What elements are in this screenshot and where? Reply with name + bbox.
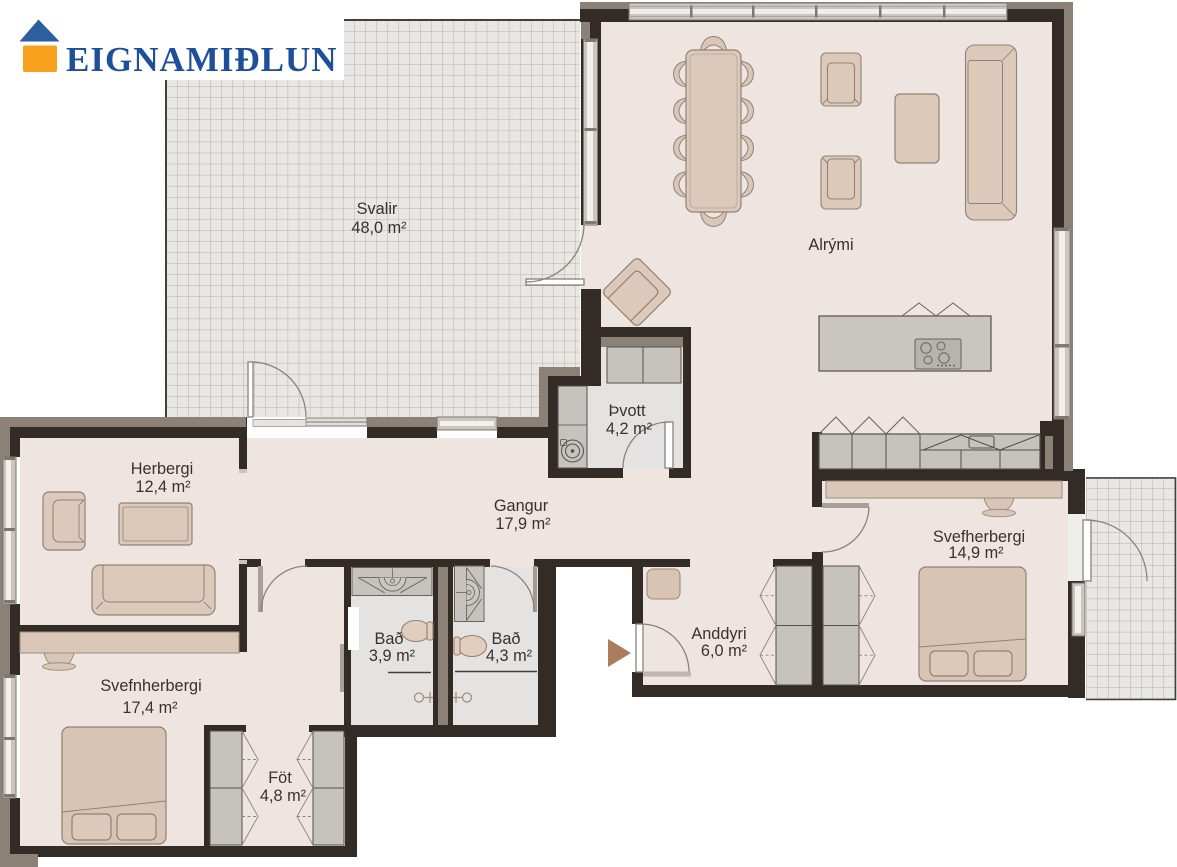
svg-text:17,4 m²: 17,4 m² <box>122 699 178 717</box>
svg-text:Þvott: Þvott <box>608 402 646 420</box>
svg-text:4,2 m²: 4,2 m² <box>606 420 653 438</box>
svg-text:12,4 m²: 12,4 m² <box>135 478 191 496</box>
svg-text:6,0 m²: 6,0 m² <box>701 642 748 660</box>
svg-text:Alrými: Alrými <box>808 236 853 254</box>
svg-text:4,3 m²: 4,3 m² <box>486 647 533 665</box>
svg-text:17,9 m²: 17,9 m² <box>495 515 551 533</box>
svg-text:Föt: Föt <box>268 769 292 787</box>
svg-text:Svalir: Svalir <box>357 200 398 218</box>
svg-text:3,9 m²: 3,9 m² <box>369 647 416 665</box>
svg-text:Svefnherbergi: Svefnherbergi <box>100 677 201 695</box>
svg-text:EIGNAMIÐLUN: EIGNAMIÐLUN <box>66 40 338 79</box>
svg-text:Herbergi: Herbergi <box>131 460 193 478</box>
svg-text:Anddyri: Anddyri <box>691 625 746 643</box>
svg-text:Gangur: Gangur <box>494 497 549 515</box>
svg-text:Bað: Bað <box>492 630 521 648</box>
svg-text:4,8 m²: 4,8 m² <box>260 787 307 805</box>
svg-text:Bað: Bað <box>375 630 404 648</box>
svg-text:48,0 m²: 48,0 m² <box>351 219 407 237</box>
svg-text:14,9 m²: 14,9 m² <box>948 544 1004 562</box>
